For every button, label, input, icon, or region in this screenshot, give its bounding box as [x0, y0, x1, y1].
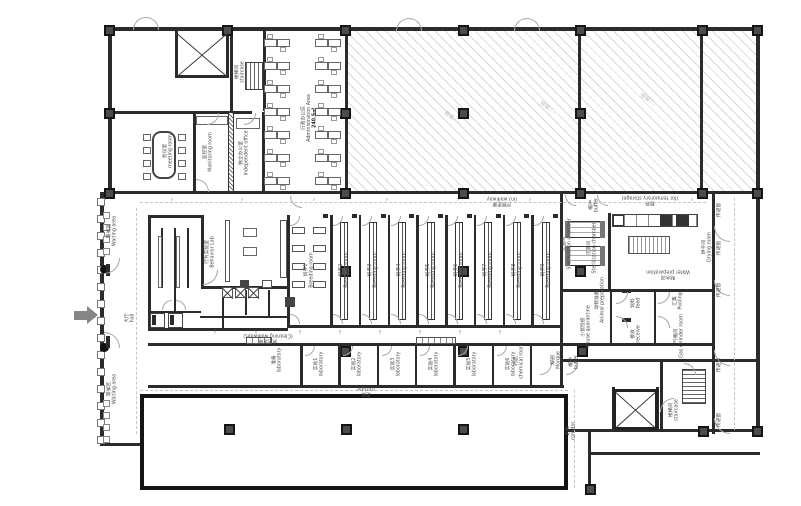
- label-text: Water preparation: [646, 269, 690, 274]
- chair: [267, 103, 273, 108]
- desk: [264, 85, 277, 93]
- desk: [277, 131, 290, 139]
- lab-wall: [492, 345, 495, 385]
- label-text: Behavior Lab: [210, 236, 215, 268]
- desk: [264, 62, 277, 70]
- chair: [331, 70, 337, 75]
- label-text: Breeding room: [459, 252, 464, 287]
- structural-column: [104, 108, 115, 119]
- label-text: staircase: [674, 399, 679, 421]
- room-label: 准备laboratory: [272, 348, 283, 373]
- flow-arrow: ↑: [418, 331, 423, 337]
- label-text: (in) walkway: [487, 196, 517, 201]
- door-leaf: [170, 315, 174, 325]
- door-arc: [104, 332, 120, 348]
- structural-column: [575, 266, 586, 277]
- label-text: receive: [636, 325, 641, 343]
- chair: [267, 149, 273, 154]
- chair: [267, 80, 273, 85]
- room-label: 传递窗: [716, 241, 721, 255]
- room-label: 传递窗: [716, 203, 721, 217]
- label-text: buffer: [574, 355, 579, 369]
- breeding-room-wall: [388, 215, 391, 325]
- room-label: 传递窗: [716, 283, 721, 297]
- desk: [328, 62, 341, 70]
- pillar: [285, 297, 295, 307]
- flow-arrow: ›: [312, 197, 315, 204]
- lab-wall: [415, 345, 418, 385]
- chair: [267, 57, 273, 62]
- label-text: Breeding room: [373, 252, 378, 287]
- chair: [331, 139, 337, 144]
- label-text: 240.5㎡: [312, 94, 317, 142]
- room-label: 饲料feed: [631, 298, 642, 309]
- door-arc: [290, 314, 300, 324]
- room-label: 饲养1Breeding room: [303, 252, 314, 287]
- door-leaf: [467, 214, 472, 218]
- structural-column: [752, 25, 763, 36]
- room-label: 实验1laboratory: [314, 352, 325, 377]
- cage-rack: [313, 263, 326, 270]
- room-label: 药品chemical room: [514, 343, 525, 379]
- chair: [318, 172, 324, 177]
- room-label: 烘干间Drying room: [702, 232, 713, 262]
- wall-segment: [591, 452, 760, 455]
- structural-column: [575, 108, 586, 119]
- room-label: 实验5laboratory: [467, 352, 478, 377]
- structural-column: [697, 25, 708, 36]
- room-label: 汇集Pooling: [673, 292, 684, 309]
- label-text: 传递窗: [716, 413, 721, 427]
- door-leaf: [381, 214, 386, 218]
- room-label: 饲养8Breeding room: [512, 252, 523, 287]
- desk: [277, 177, 290, 185]
- wall-segment: [562, 289, 712, 292]
- label-text: laboratory: [396, 352, 401, 377]
- breeding-room-wall: [503, 215, 506, 325]
- cage-rack: [292, 245, 305, 252]
- breeding-room-wall: [445, 215, 448, 325]
- door-leaf: [524, 214, 529, 218]
- wall-segment: [756, 27, 760, 437]
- chair: [331, 162, 337, 167]
- wall-segment: [287, 215, 290, 328]
- desk: [264, 131, 277, 139]
- flow-arrow: ›: [240, 197, 243, 204]
- desk: [264, 39, 277, 47]
- structural-column: [340, 108, 351, 119]
- room-label: 饲养2Breeding room: [339, 252, 350, 287]
- chair: [280, 93, 286, 98]
- door-arc: [565, 195, 576, 206]
- door-arc: [203, 270, 218, 285]
- staircase-treads: [245, 62, 263, 90]
- chair: [267, 172, 273, 177]
- structural-column: [224, 424, 235, 435]
- corridor-bench: [416, 337, 456, 344]
- chair: [280, 70, 286, 75]
- desk: [315, 85, 328, 93]
- door-arc: [290, 216, 300, 226]
- structural-column: [458, 108, 469, 119]
- label-text: laboratory: [319, 352, 324, 377]
- label-text: 清洁走廊: [243, 338, 293, 343]
- structural-column: [575, 188, 586, 199]
- door-arc: [290, 196, 302, 208]
- chair: [331, 93, 337, 98]
- meeting-chair: [143, 173, 151, 180]
- label-text: 传递窗: [716, 203, 721, 217]
- lab-wall: [530, 345, 533, 385]
- room-label: 等候区Waiting area: [107, 216, 118, 246]
- label-text: feed: [636, 298, 641, 309]
- room-label: 缓冲buffer: [589, 198, 600, 212]
- chair: [318, 149, 324, 154]
- label-text: corridor: [357, 386, 376, 391]
- label-text: Animal preparation: [600, 277, 605, 323]
- breeding-room-wall: [416, 215, 419, 325]
- door-arc: [104, 258, 120, 274]
- room-label: 接收receive: [631, 325, 642, 343]
- chair: [318, 103, 324, 108]
- desk: [328, 39, 341, 47]
- wall-segment: [226, 31, 229, 77]
- chair: [267, 126, 273, 131]
- entry-arrow-head: [87, 306, 98, 324]
- label-text: Independent office: [244, 130, 249, 175]
- room-label: 解剖Morgue: [551, 351, 562, 369]
- label-text: meeting room: [168, 134, 173, 168]
- room-label: 制水间Water preparation: [646, 269, 690, 280]
- room-label: 走廊corridor: [357, 386, 376, 397]
- desk: [328, 108, 341, 116]
- chair: [280, 139, 286, 144]
- label-text: Drying room: [707, 232, 712, 262]
- wall-segment: [654, 291, 656, 346]
- bench: [176, 236, 180, 288]
- desk: [315, 177, 328, 185]
- door-leaf: [553, 214, 558, 218]
- chair: [267, 34, 273, 39]
- lab-wall: [338, 345, 341, 385]
- label-text: Sterilization chamber: [592, 222, 597, 273]
- label-text: (Cleaning walkways): [243, 333, 293, 338]
- door-leaf: [352, 214, 357, 218]
- desk: [277, 154, 290, 162]
- mullion: [97, 351, 105, 359]
- wall-segment: [610, 291, 612, 346]
- label-text: 传递窗: [716, 283, 721, 297]
- door-arc: [684, 363, 696, 375]
- breeding-room-wall: [474, 215, 477, 325]
- door-leaf: [438, 214, 443, 218]
- room-label: 独立办公室Independent office: [239, 130, 250, 175]
- floor-plan: ›››››››↑↑↑↑↑↑↑↑饲养1Breeding room饲养2Breedi…: [0, 0, 801, 506]
- structural-column: [697, 188, 708, 199]
- room-label: 等候区Waiting area: [107, 374, 118, 404]
- desk: [264, 108, 277, 116]
- door-leaf: [409, 214, 414, 218]
- room-label: 饲养5Breeding room: [425, 252, 436, 287]
- desk: [315, 39, 328, 47]
- waiting-chair: [103, 424, 110, 431]
- lab-wall: [377, 345, 380, 385]
- wall-segment: [700, 31, 703, 192]
- wall-segment: [588, 432, 591, 488]
- room-label: 楼梯间staircase: [235, 61, 246, 83]
- waiting-chair: [103, 412, 110, 419]
- room-label: 小鼠检疫Mouse quarantine: [581, 305, 592, 348]
- wall-segment: [608, 213, 611, 292]
- room-label: 会议室meeting room: [163, 134, 174, 168]
- autoclave-end: [600, 221, 605, 238]
- label-text: Waiting area: [112, 374, 117, 404]
- mullion: [97, 300, 105, 308]
- desk: [328, 85, 341, 93]
- flow-arrow: ↑: [378, 331, 383, 337]
- structural-column: [585, 484, 596, 495]
- sink: [676, 215, 689, 226]
- chair: [331, 47, 337, 52]
- room-label: 大厅hall: [125, 313, 136, 323]
- chair: [331, 185, 337, 190]
- flow-arrow: ↑: [298, 331, 303, 337]
- structural-column: [458, 188, 469, 199]
- chair: [318, 80, 324, 85]
- room-label: 暂存(for temporary storage): [622, 195, 679, 206]
- flow-arrow: ›: [385, 197, 388, 204]
- door-arc: [396, 18, 409, 31]
- meeting-chair: [178, 160, 186, 167]
- hall-boundary: [136, 208, 137, 434]
- drying-rack: [628, 236, 670, 254]
- room-label: 饲养4Breeding room: [397, 252, 408, 287]
- room-label: 缓冲buffer: [569, 355, 580, 369]
- room-label: 实验3laboratory: [390, 352, 401, 377]
- desk: [277, 85, 290, 93]
- room-label: 实验2laboratory: [352, 352, 363, 377]
- chair: [318, 126, 324, 131]
- door-arc: [146, 17, 159, 30]
- room-label: 气瓶间Gas cylinder room: [674, 314, 685, 358]
- lab-table: [243, 228, 257, 237]
- flow-arrow: ↑: [213, 331, 218, 337]
- wall-segment: [187, 228, 189, 288]
- structural-column: [458, 25, 469, 36]
- corridor-centerline: [734, 198, 735, 430]
- door-leaf: [323, 214, 328, 218]
- label-text: staircase: [240, 61, 245, 83]
- structural-column: [104, 188, 115, 199]
- desk: [315, 154, 328, 162]
- bench: [158, 236, 162, 288]
- meeting-chair: [143, 147, 151, 154]
- room-label: 饲养9Breeding room: [540, 252, 551, 287]
- cage-rack: [313, 245, 326, 252]
- structural-column: [698, 426, 709, 437]
- flow-arrow: ›: [170, 197, 173, 204]
- chair: [318, 34, 324, 39]
- desk: [264, 154, 277, 162]
- door-arc: [527, 18, 540, 31]
- meeting-chair: [143, 160, 151, 167]
- label-text: Monitoring room: [208, 132, 213, 172]
- wall-segment: [148, 328, 288, 331]
- flow-arrow: ›: [456, 197, 459, 204]
- door-arc: [714, 226, 730, 242]
- door-arc: [658, 292, 670, 304]
- label-text: 传递窗: [716, 241, 721, 255]
- breeding-room-wall: [531, 215, 534, 325]
- door-arc: [133, 17, 146, 30]
- equipment: [262, 280, 272, 288]
- structural-column: [752, 426, 763, 437]
- flow-arrow: ↑: [498, 331, 503, 337]
- room-label: 饲养3Breeding room: [368, 252, 379, 287]
- desk: [277, 39, 290, 47]
- label-text: Gas cylinder room: [679, 314, 684, 358]
- wall-segment: [230, 31, 233, 111]
- cage-rack: [292, 227, 305, 234]
- desk: [328, 154, 341, 162]
- chair: [280, 47, 286, 52]
- meeting-chair: [143, 134, 151, 141]
- room-label: 实验4laboratory: [429, 352, 440, 377]
- flow-arrow: ›: [528, 197, 531, 204]
- room-label: 清洁走廊(Cleaning walkways): [243, 333, 293, 344]
- mullion: [97, 385, 105, 393]
- desk: [277, 108, 290, 116]
- desk: [277, 62, 290, 70]
- label-text: Sterilization chamber: [567, 218, 572, 269]
- meeting-chair: [178, 173, 186, 180]
- room-label: 楼梯间staircase: [669, 399, 680, 421]
- label-text: Breeding room: [488, 252, 493, 287]
- wall-segment: [108, 27, 760, 31]
- label-text: Breeding room: [546, 252, 551, 287]
- label-text: buffer: [594, 198, 599, 212]
- label-text: 走廊: [357, 391, 376, 396]
- lab-bench: [280, 220, 287, 278]
- mullion: [97, 198, 105, 206]
- structural-column: [575, 25, 586, 36]
- label-text: laboratory: [434, 352, 439, 377]
- room-label: 行政办公区Administration Area240.5㎡: [301, 94, 317, 142]
- structural-column: [340, 188, 351, 199]
- label-text: corridor: [571, 422, 576, 441]
- waiting-chair: [103, 436, 110, 443]
- structural-column: [104, 25, 115, 36]
- chair: [280, 162, 286, 167]
- chair: [318, 57, 324, 62]
- breeding-room-wall: [330, 215, 333, 325]
- label-text: Morgue: [556, 351, 561, 369]
- adjacent-hall: [140, 394, 568, 490]
- structural-column: [752, 188, 763, 199]
- sink: [660, 215, 672, 226]
- label-text: Breeding room: [517, 252, 522, 287]
- wall-segment: [175, 31, 178, 77]
- room-label: 传递窗: [716, 413, 721, 427]
- structural-column: [340, 25, 351, 36]
- label-text: Breeding room: [431, 252, 436, 287]
- lab-wall: [453, 345, 456, 385]
- label-text: 制水间: [646, 274, 690, 279]
- label-text: laboratory: [277, 348, 282, 373]
- lab-bench: [225, 220, 230, 282]
- lab-wall: [300, 345, 303, 385]
- door-arc: [514, 18, 527, 31]
- desk: [328, 177, 341, 185]
- corridor-centerline: [140, 390, 568, 391]
- door-leaf: [496, 214, 501, 218]
- chair: [280, 185, 286, 190]
- wall-segment: [287, 325, 562, 328]
- label-text: hall: [130, 313, 135, 323]
- room-label: 灭菌间Sterilization chamber: [562, 218, 573, 269]
- cage-rack: [313, 281, 326, 288]
- door-arc: [176, 300, 186, 310]
- label-text: Breeding room: [309, 252, 314, 287]
- label-text: 暂存: [622, 200, 679, 205]
- room-label: 行为实验室Behavior Lab: [205, 236, 216, 268]
- door-arc: [409, 18, 422, 31]
- desk: [264, 177, 277, 185]
- label-text: Breeding room: [344, 252, 349, 287]
- door-arc: [162, 300, 172, 310]
- label-text: Pooling: [678, 292, 683, 309]
- door-arc: [616, 292, 628, 304]
- label-text: chemical room: [519, 343, 524, 379]
- label-text: Waiting area: [112, 216, 117, 246]
- mullion: [97, 368, 105, 376]
- flow-arrow: ↑: [458, 331, 463, 337]
- wall-segment: [150, 215, 202, 218]
- wall-segment: [268, 290, 270, 317]
- desk: [315, 62, 328, 70]
- label-text: Mouse quarantine: [586, 305, 591, 348]
- flow-arrow: ›: [690, 197, 693, 204]
- room-label: 走廊corridor: [566, 422, 577, 441]
- cage-rack: [313, 227, 326, 234]
- mullion: [97, 283, 105, 291]
- label-text: 传递窗: [716, 358, 721, 372]
- label-text: (for temporary storage): [622, 195, 679, 200]
- equipment: [613, 215, 624, 226]
- room-label: 饲养6Breeding room: [454, 252, 465, 287]
- breeding-room-wall: [359, 215, 362, 325]
- meeting-chair: [178, 134, 186, 141]
- door-arc: [196, 179, 209, 192]
- room-label: 灭菌间Sterilization chamber: [587, 222, 598, 273]
- meeting-chair: [178, 147, 186, 154]
- flow-arrow: ↑: [338, 331, 343, 337]
- room-label: 监控室Monitoring room: [203, 132, 214, 172]
- label-text: laboratory: [472, 352, 477, 377]
- room-label: 动物准备Animal preparation: [595, 277, 606, 323]
- insulated-wall: [228, 112, 234, 192]
- wall-segment: [175, 75, 229, 78]
- door-arc: [658, 316, 670, 328]
- chair: [280, 116, 286, 121]
- wall-segment: [100, 443, 144, 446]
- wall-segment: [660, 361, 663, 432]
- label-text: Breeding room: [402, 252, 407, 287]
- room-label: 污物走廊(in) walkway: [487, 196, 517, 207]
- label-text: 污物走廊: [487, 201, 517, 206]
- autoclave-end: [600, 246, 605, 266]
- structural-column: [341, 424, 352, 435]
